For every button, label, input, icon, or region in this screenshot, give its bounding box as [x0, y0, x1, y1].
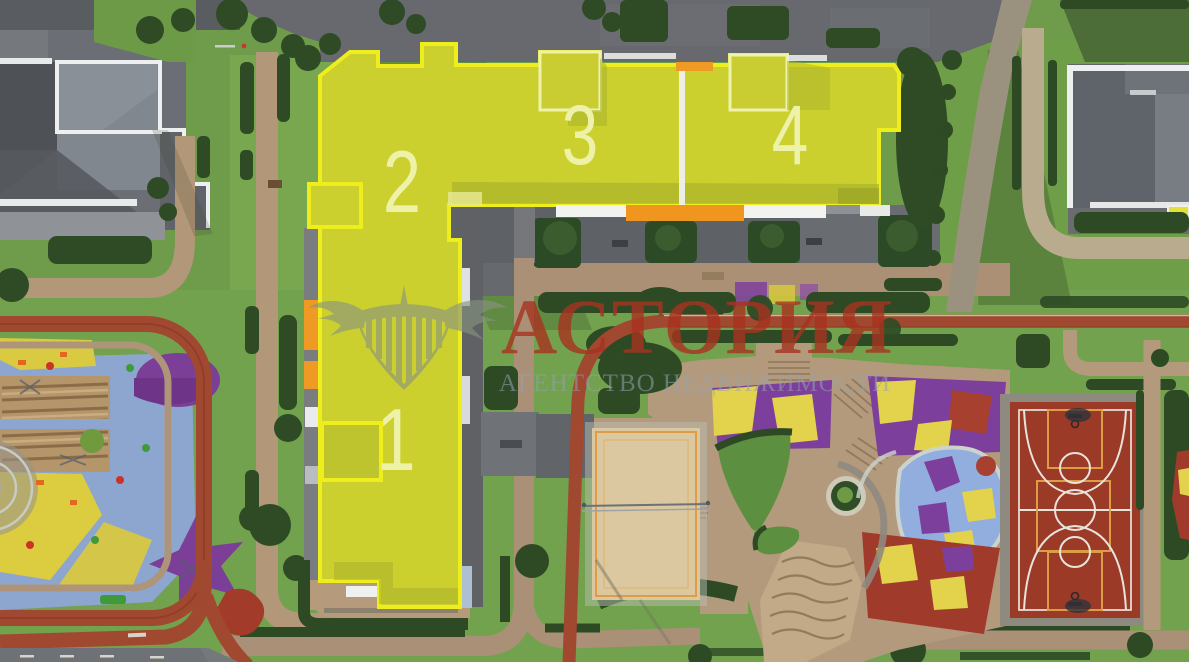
- svg-text:АГЕНТСТВО НЕДВИЖИМОСТИ: АГЕНТСТВО НЕДВИЖИМОСТИ: [499, 370, 891, 397]
- svg-text:1: 1: [376, 390, 415, 488]
- svg-text:АСТОРИЯ: АСТОРИЯ: [501, 283, 893, 370]
- svg-text:2: 2: [383, 133, 421, 231]
- svg-text:4: 4: [772, 88, 808, 182]
- svg-text:3: 3: [562, 88, 598, 182]
